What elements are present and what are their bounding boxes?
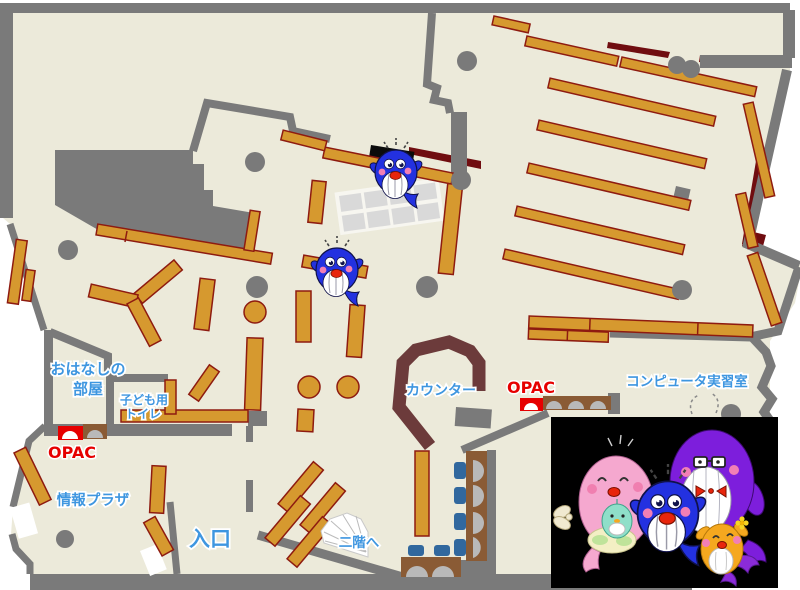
label-storytelling-room-2: 部屋	[73, 380, 103, 398]
label-counter: カウンター	[406, 383, 476, 399]
opac-station-left	[58, 424, 107, 440]
label-to-second-floor: 二階へ	[339, 534, 380, 551]
label-opac-left: OPAC	[48, 443, 96, 462]
label-storytelling-room: おはなしの	[50, 360, 125, 378]
staff-desk	[455, 407, 492, 428]
floor-map-svg: おはなしの 部屋 子ども用 トイレ OPAC 情報プラザ 入口 二階へ カウンタ…	[0, 0, 800, 590]
label-opac-right: OPAC	[507, 378, 555, 397]
label-info-plaza: 情報プラザ	[57, 491, 130, 509]
opac-station-right	[520, 396, 611, 411]
label-entrance: 入口	[189, 527, 231, 551]
label-computer-room: コンピュータ実習室	[626, 373, 748, 390]
mascot-family-picture	[551, 393, 778, 588]
library-floor-map: おはなしの 部屋 子ども用 トイレ OPAC 情報プラザ 入口 二階へ カウンタ…	[0, 0, 800, 590]
label-kids-toilet: 子ども用	[120, 393, 168, 407]
label-kids-toilet-2: トイレ	[125, 407, 161, 421]
